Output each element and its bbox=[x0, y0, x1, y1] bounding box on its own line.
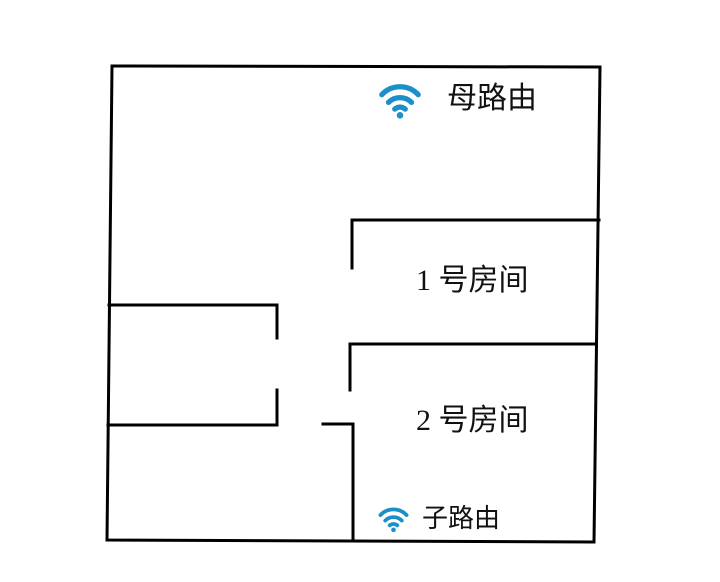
room-1-label: 1 号房间 bbox=[416, 266, 529, 296]
room-2-label: 2 号房间 bbox=[416, 406, 529, 436]
mother-router-label: 母路由 bbox=[447, 84, 537, 114]
closet-top-wall bbox=[109, 305, 277, 338]
floorplan-walls bbox=[0, 0, 720, 582]
closet-bottom-wall bbox=[108, 390, 277, 425]
room-divider-wall bbox=[350, 344, 596, 390]
wifi-icon bbox=[377, 79, 423, 120]
room2-wall bbox=[323, 424, 353, 541]
wifi-icon bbox=[377, 504, 410, 533]
floorplan-canvas: 母路由 1 号房间 2 号房间 子路由 bbox=[0, 0, 720, 582]
child-router-label: 子路由 bbox=[422, 506, 500, 532]
room1-wall bbox=[352, 220, 599, 268]
